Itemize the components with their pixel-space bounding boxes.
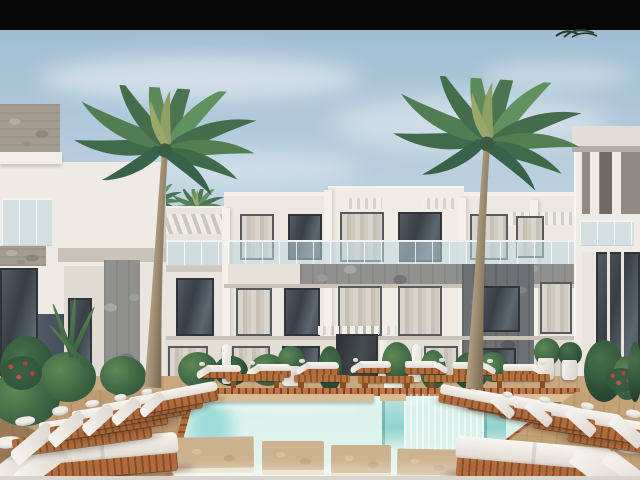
bottom-strip (0, 476, 640, 480)
lounger-pillow (538, 395, 551, 403)
resort-render (0, 0, 640, 480)
lounger-pillow (580, 402, 594, 411)
lounger-pillow (625, 409, 640, 419)
letterbox-bar (0, 0, 640, 30)
palm-tree (48, 82, 268, 396)
tiny-palm-silhouette (554, 28, 598, 38)
palm-tree (367, 73, 594, 398)
